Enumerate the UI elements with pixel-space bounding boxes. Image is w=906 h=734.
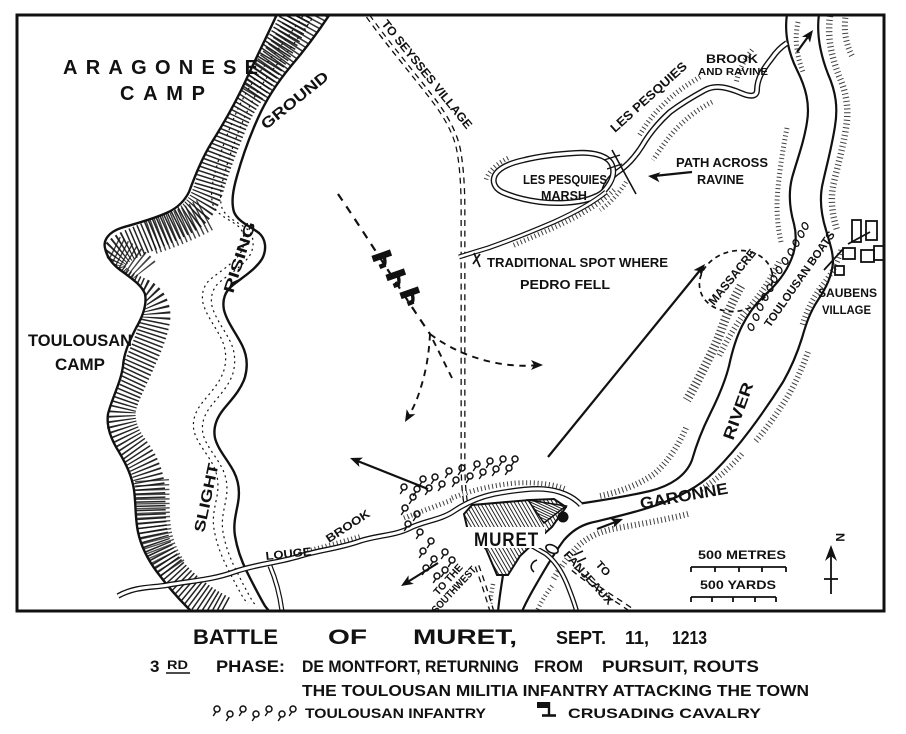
svg-text:BROOK: BROOK <box>706 54 759 66</box>
svg-text:DE MONTFORT, RETURNING: DE MONTFORT, RETURNING <box>302 658 519 676</box>
svg-text:11,: 11, <box>625 628 649 648</box>
svg-text:AND RAVINE: AND RAVINE <box>698 66 768 78</box>
svg-text:500 YARDS: 500 YARDS <box>700 578 776 592</box>
svg-text:CRUSADING CAVALRY: CRUSADING CAVALRY <box>568 705 762 721</box>
svg-text:SAUBENS: SAUBENS <box>818 286 877 300</box>
svg-text:MURET,: MURET, <box>413 626 517 649</box>
svg-text:1213: 1213 <box>672 628 707 648</box>
svg-text:ARAGONESE: ARAGONESE <box>63 57 258 79</box>
svg-text:PURSUIT, ROUTS: PURSUIT, ROUTS <box>602 658 759 676</box>
svg-text:THE TOULOUSAN MILITIA INFANTRY: THE TOULOUSAN MILITIA INFANTRY ATTACKING… <box>302 683 809 700</box>
svg-text:MARSH: MARSH <box>541 189 587 203</box>
svg-text:CAMP: CAMP <box>55 355 105 374</box>
svg-text:500 METRES: 500 METRES <box>698 548 786 562</box>
svg-text:MURET: MURET <box>474 530 539 551</box>
svg-text:N: N <box>833 533 847 542</box>
svg-text:BATTLE: BATTLE <box>193 626 278 649</box>
svg-text:TOULOUSAN: TOULOUSAN <box>28 331 132 350</box>
svg-text:PHASE:: PHASE: <box>216 658 285 676</box>
svg-text:RAVINE: RAVINE <box>697 173 744 187</box>
svg-text:RD: RD <box>167 658 188 672</box>
svg-text:3: 3 <box>150 657 159 676</box>
svg-text:OF: OF <box>328 626 367 649</box>
svg-text:PATH ACROSS: PATH ACROSS <box>676 156 768 170</box>
svg-text:TRADITIONAL SPOT WHERE: TRADITIONAL SPOT WHERE <box>487 256 668 270</box>
svg-text:TOULOUSAN INFANTRY: TOULOUSAN INFANTRY <box>305 705 487 721</box>
svg-text:FROM: FROM <box>534 658 583 676</box>
svg-text:LES PESQUIES: LES PESQUIES <box>523 173 607 187</box>
svg-text:VILLAGE: VILLAGE <box>822 303 871 317</box>
svg-text:SEPT.: SEPT. <box>556 628 606 648</box>
svg-text:PEDRO FELL: PEDRO FELL <box>520 278 610 292</box>
